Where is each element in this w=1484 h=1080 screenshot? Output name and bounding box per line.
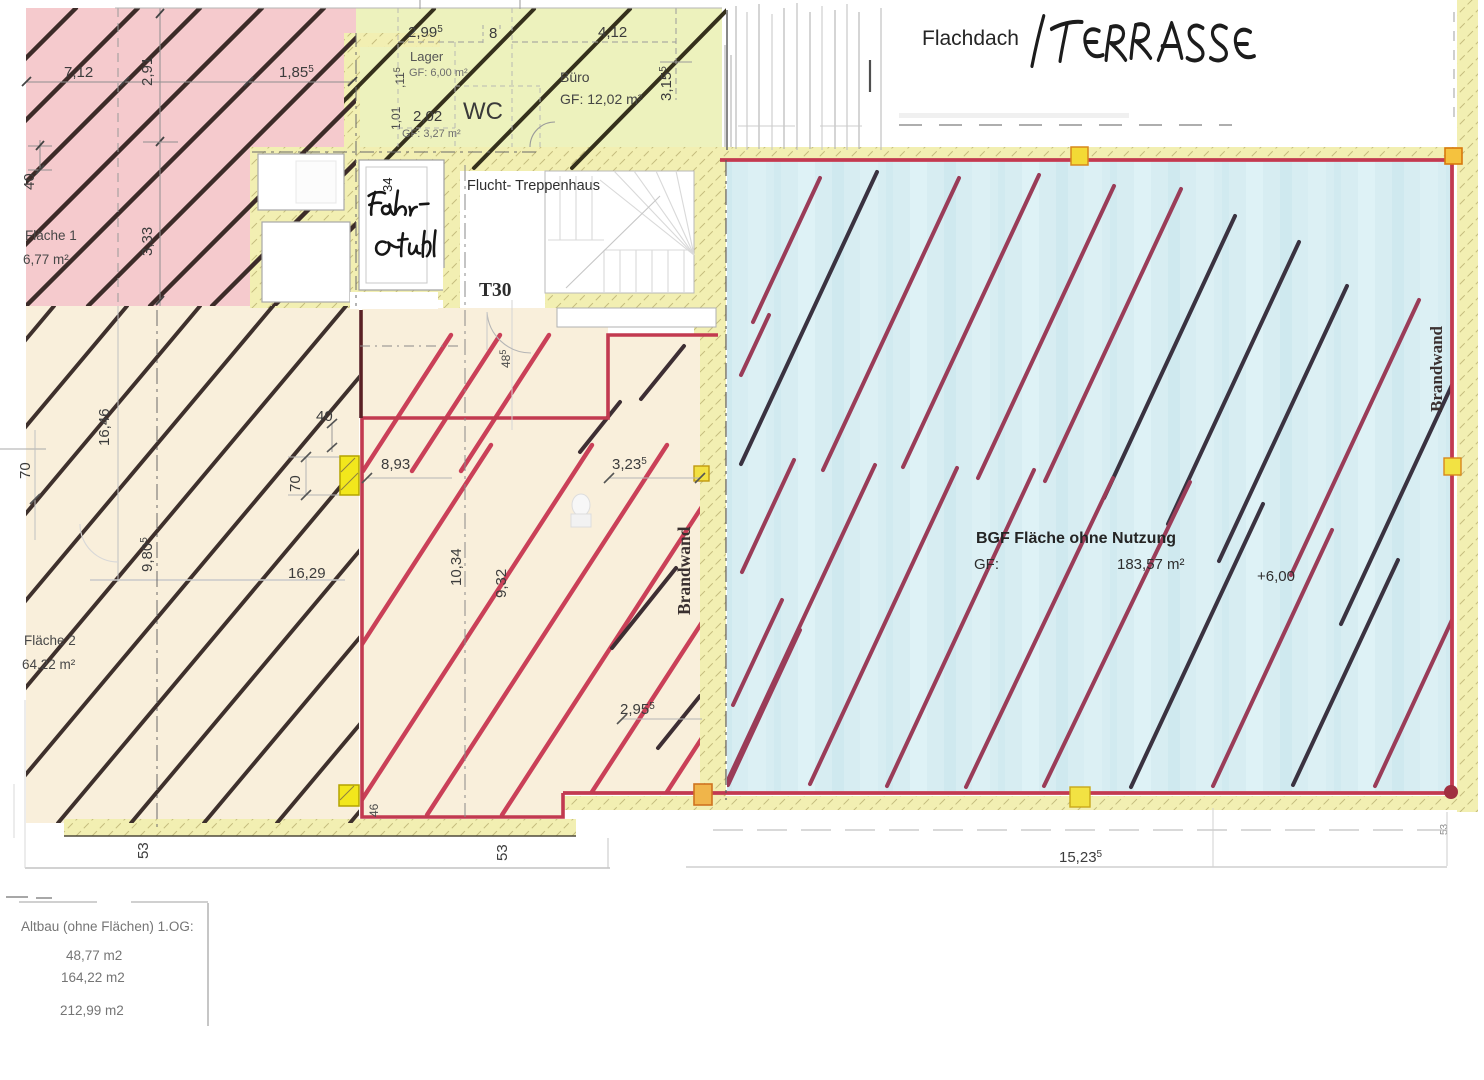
svg-text:WC: WC [463, 98, 503, 125]
svg-text:9,32: 9,32 [493, 569, 510, 598]
svg-text:53: 53 [1439, 823, 1450, 835]
svg-text:46: 46 [367, 803, 381, 817]
svg-text:1,01: 1,01 [389, 106, 403, 130]
svg-text:4,12: 4,12 [598, 24, 627, 41]
svg-text:40: 40 [316, 408, 333, 425]
svg-text:GF:: GF: [974, 556, 999, 573]
svg-text:GF: 3,27 m²: GF: 3,27 m² [402, 128, 461, 140]
svg-text:Fläche 2: Fläche 2 [24, 633, 76, 648]
svg-text:Brandwand: Brandwand [674, 526, 694, 615]
svg-text:6,77 m²: 6,77 m² [23, 252, 69, 267]
svg-text:16,46: 16,46 [96, 408, 113, 446]
svg-text:34: 34 [380, 178, 395, 192]
svg-text:70: 70 [287, 475, 304, 492]
svg-text:10,34: 10,34 [448, 548, 465, 586]
svg-text:+6,00: +6,00 [1257, 568, 1295, 585]
svg-text:GF: 6,00 m²: GF: 6,00 m² [409, 67, 468, 79]
svg-text:53: 53 [494, 844, 511, 861]
svg-text:3,33: 3,33 [139, 227, 156, 256]
svg-text:Flucht- Treppenhaus: Flucht- Treppenhaus [467, 178, 600, 194]
svg-text:Flachdach: Flachdach [922, 27, 1019, 50]
svg-text:8,93: 8,93 [381, 456, 410, 473]
svg-text:16,29: 16,29 [288, 565, 326, 582]
svg-text:Brandwand: Brandwand [1427, 325, 1446, 412]
svg-text:Lager: Lager [410, 49, 444, 64]
svg-text:Altbau (ohne Flächen) 1.OG:: Altbau (ohne Flächen) 1.OG: [21, 919, 194, 934]
svg-text:2,02: 2,02 [413, 108, 442, 125]
svg-text:183,57 m²: 183,57 m² [1117, 556, 1185, 573]
svg-text:64,22 m²: 64,22 m² [22, 657, 76, 672]
svg-text:70: 70 [17, 462, 34, 479]
svg-text:48,77 m2: 48,77 m2 [66, 948, 122, 963]
svg-text:212,99 m2: 212,99 m2 [60, 1003, 124, 1018]
svg-text:2,91: 2,91 [139, 57, 156, 86]
svg-text:15,235: 15,235 [1059, 849, 1103, 866]
svg-text:40: 40 [21, 173, 38, 190]
svg-text:GF: 12,02 m²: GF: 12,02 m² [560, 91, 643, 107]
svg-text:53: 53 [135, 842, 152, 859]
svg-text:164,22 m2: 164,22 m2 [61, 970, 125, 985]
svg-text:8: 8 [489, 25, 497, 42]
svg-text:Fläche 1: Fläche 1 [25, 228, 77, 243]
svg-text:Büro: Büro [560, 69, 590, 85]
svg-text:BGF Fläche ohne Nutzung: BGF Fläche ohne Nutzung [976, 530, 1176, 547]
svg-text:7,12: 7,12 [64, 64, 93, 81]
svg-text:T30: T30 [479, 280, 512, 301]
